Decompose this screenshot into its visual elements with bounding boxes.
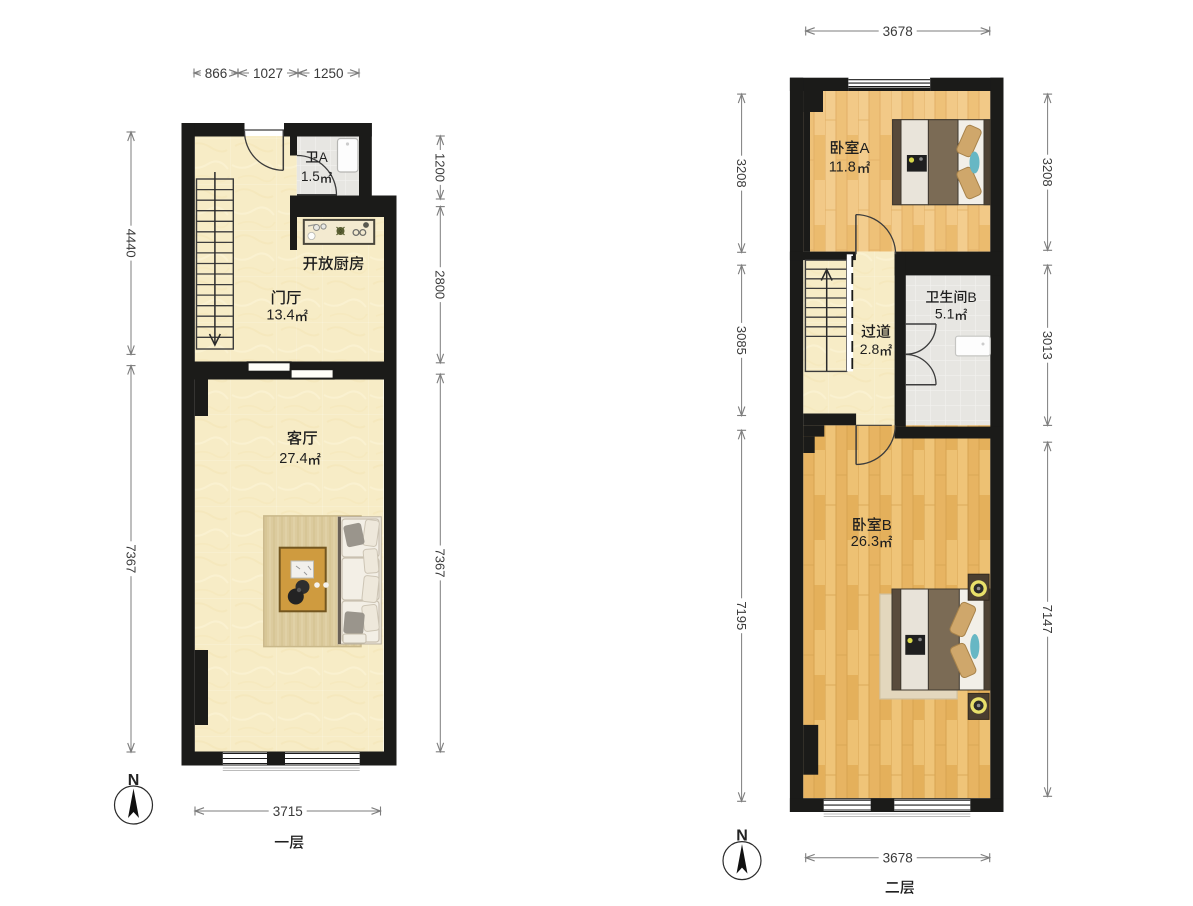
svg-text:7195: 7195 bbox=[734, 601, 749, 630]
svg-text:3678: 3678 bbox=[883, 851, 913, 866]
svg-text:A: A bbox=[860, 140, 870, 157]
svg-text:2.8: 2.8 bbox=[860, 341, 880, 357]
svg-text:1200: 1200 bbox=[433, 153, 448, 182]
svg-text:4440: 4440 bbox=[123, 229, 138, 258]
svg-text:B: B bbox=[882, 517, 892, 534]
svg-text:3208: 3208 bbox=[734, 159, 749, 188]
svg-text:866: 866 bbox=[205, 66, 228, 81]
svg-text:26.3: 26.3 bbox=[851, 534, 879, 550]
svg-text:1250: 1250 bbox=[313, 66, 343, 81]
svg-text:3678: 3678 bbox=[883, 24, 913, 39]
svg-text:A: A bbox=[319, 150, 328, 165]
svg-text:3013: 3013 bbox=[1040, 331, 1055, 360]
svg-text:3715: 3715 bbox=[273, 804, 303, 819]
svg-text:N: N bbox=[736, 827, 748, 844]
svg-text:N: N bbox=[128, 772, 140, 789]
svg-text:27.4: 27.4 bbox=[279, 451, 307, 467]
svg-text:7367: 7367 bbox=[433, 549, 448, 578]
svg-text:1.5: 1.5 bbox=[301, 169, 320, 184]
svg-text:7367: 7367 bbox=[123, 544, 138, 573]
svg-text:1027: 1027 bbox=[253, 66, 283, 81]
svg-text:2800: 2800 bbox=[433, 270, 448, 299]
svg-text:13.4: 13.4 bbox=[266, 308, 294, 324]
svg-text:3085: 3085 bbox=[734, 326, 749, 355]
svg-text:7147: 7147 bbox=[1040, 605, 1055, 634]
svg-text:5.1: 5.1 bbox=[935, 305, 955, 321]
svg-text:B: B bbox=[967, 289, 976, 305]
svg-text:11.8: 11.8 bbox=[829, 159, 856, 175]
svg-text:3208: 3208 bbox=[1040, 158, 1055, 187]
